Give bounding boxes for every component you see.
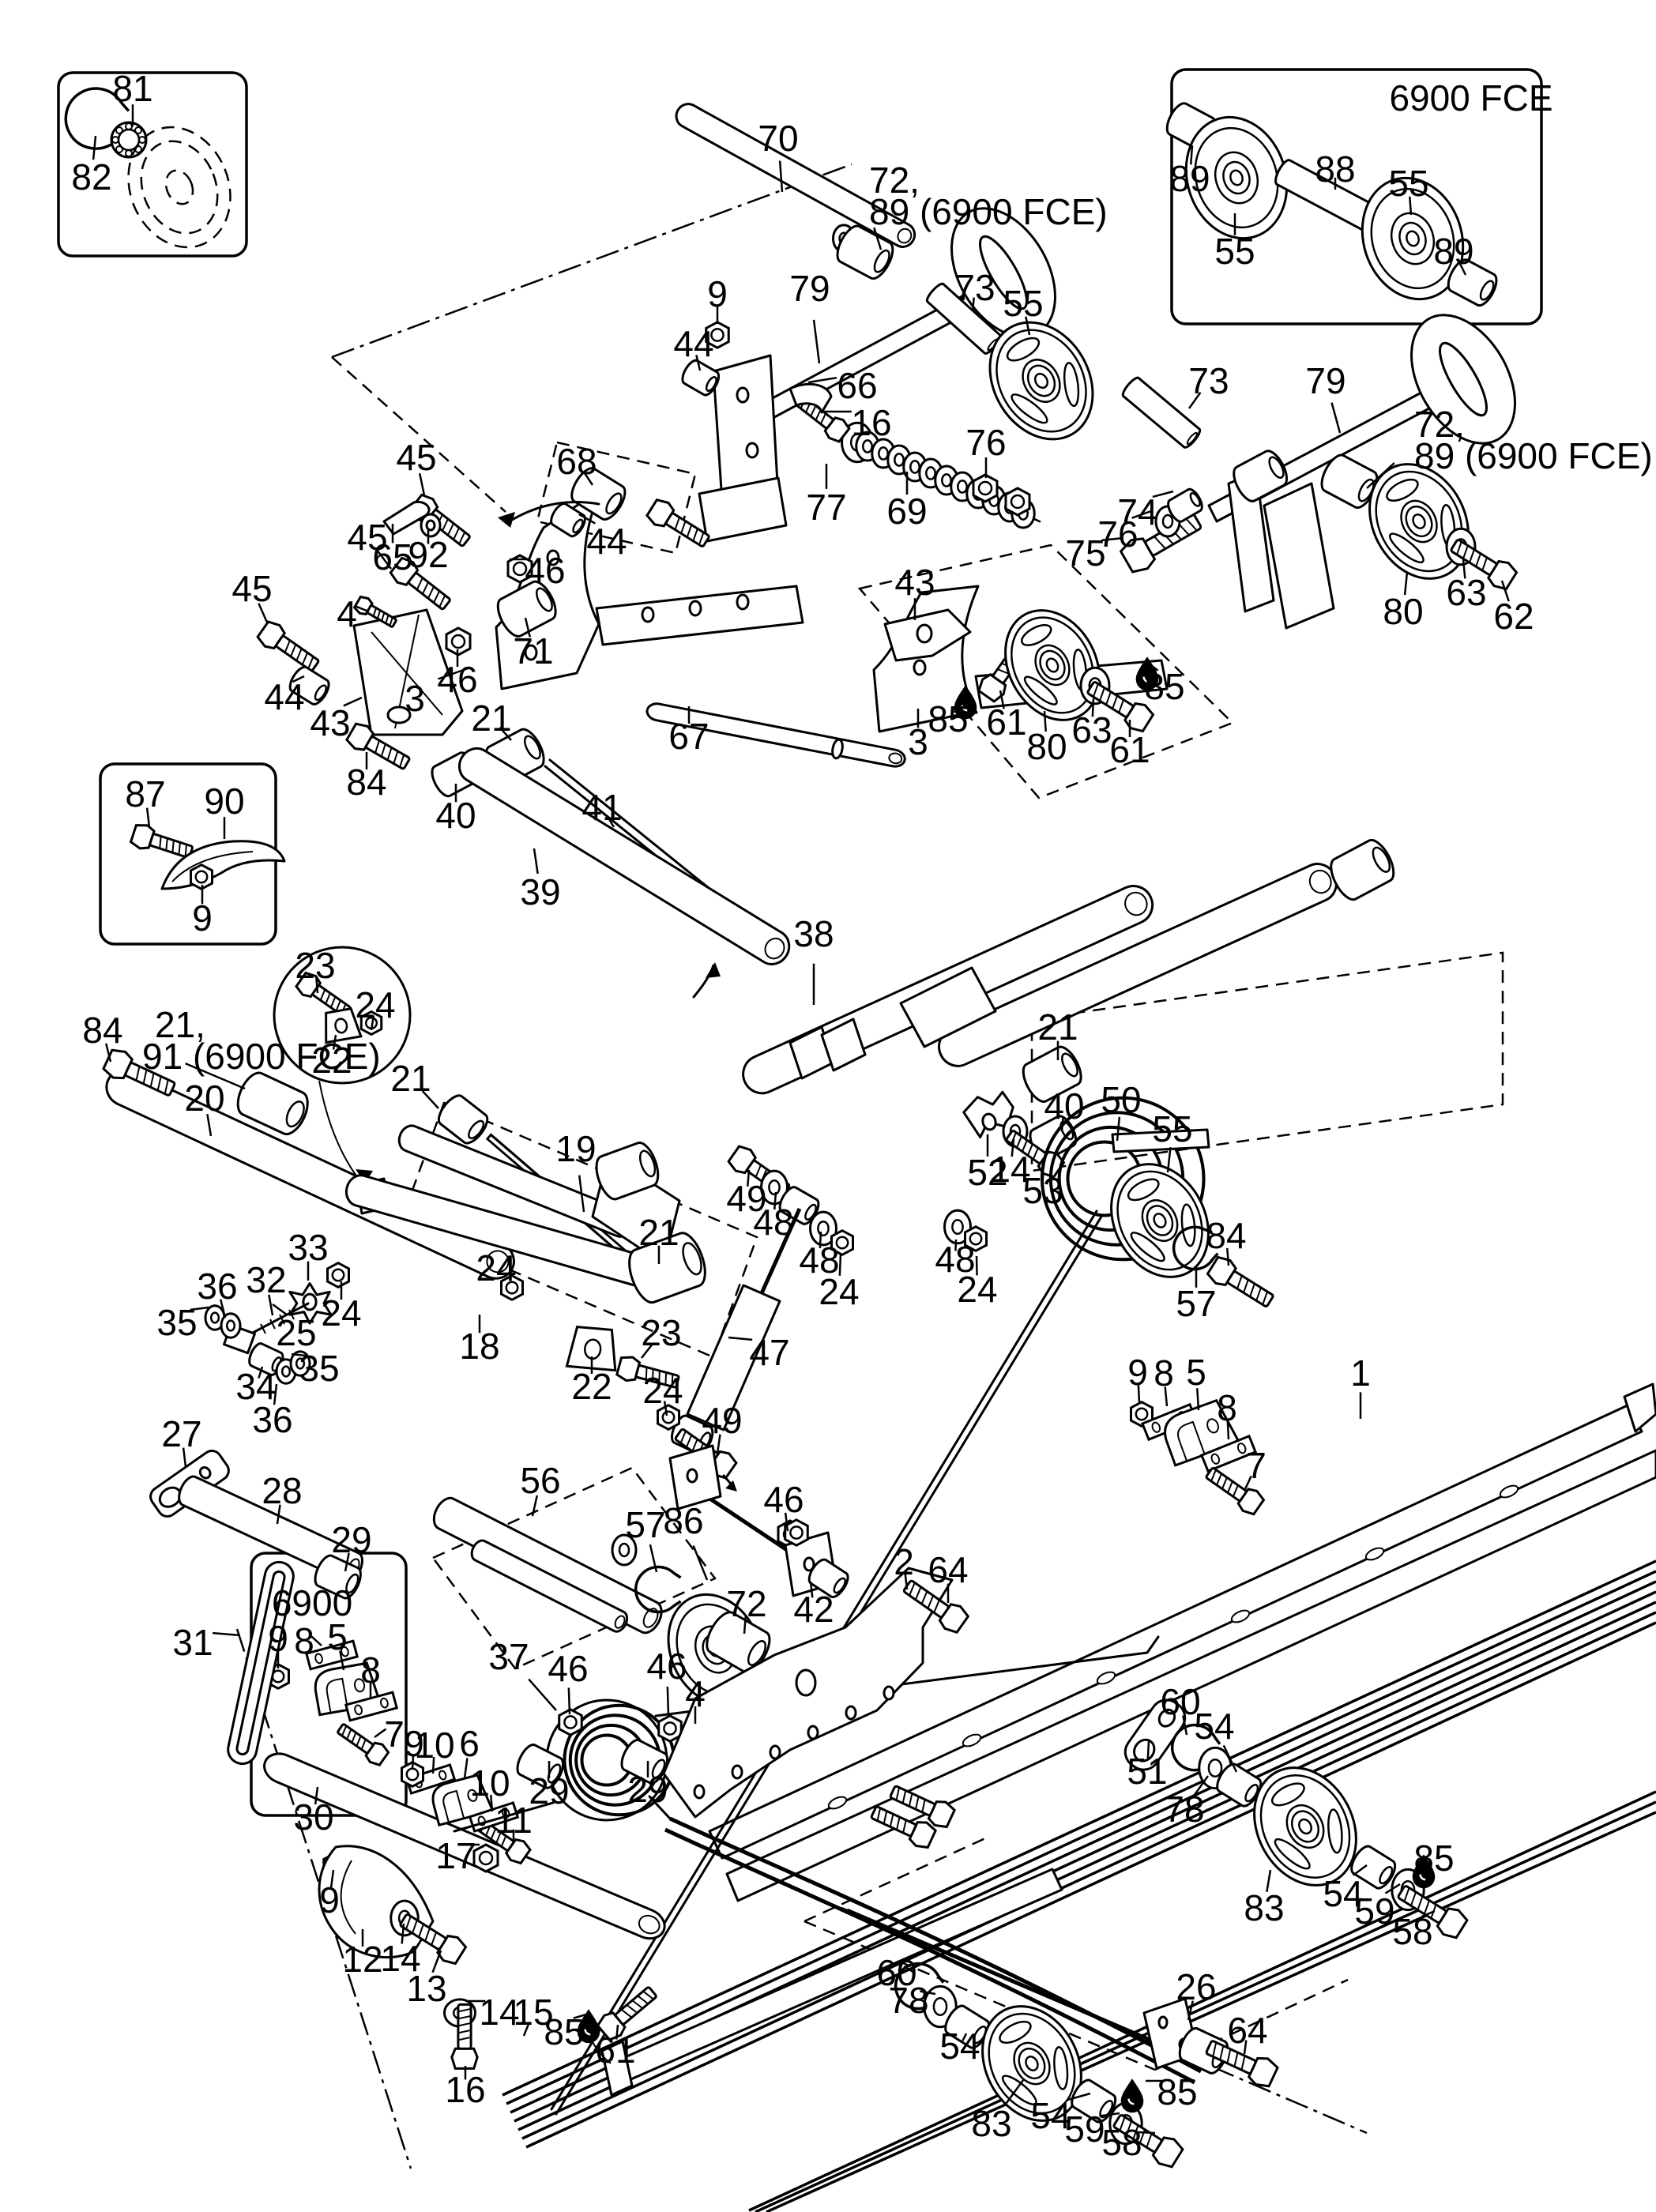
- part-label-85: 85: [1413, 1838, 1454, 1879]
- part-label-41: 41: [581, 787, 622, 828]
- part-label-19: 19: [555, 1128, 596, 1169]
- part-label-80: 80: [1026, 726, 1067, 767]
- leader-line: [569, 1687, 570, 1714]
- part-label-79: 79: [789, 268, 830, 309]
- part-label-58: 58: [1101, 2122, 1142, 2163]
- part-label-51: 51: [1127, 1751, 1167, 1792]
- part-label-30: 30: [293, 1796, 333, 1838]
- part-label-87: 87: [125, 773, 165, 814]
- part-label-24: 24: [642, 1370, 683, 1411]
- part-label-82: 82: [71, 156, 111, 197]
- part-label-75: 75: [1065, 532, 1105, 574]
- part-label-1: 1: [1350, 1352, 1371, 1394]
- part-label-59: 59: [1354, 1890, 1394, 1932]
- part-label-50: 50: [1101, 1079, 1141, 1120]
- part-label-71: 71: [513, 630, 553, 671]
- part-label-56: 56: [520, 1460, 560, 1501]
- part-label-8: 8: [1154, 1352, 1174, 1394]
- part-label-3: 3: [405, 678, 425, 719]
- part-label-53: 53: [1022, 1170, 1063, 1211]
- part-label-22: 22: [571, 1366, 612, 1407]
- part-label-18: 18: [459, 1326, 499, 1367]
- part-label-16: 16: [851, 402, 891, 443]
- nut-17-icon: [474, 1845, 498, 1872]
- part-label-76: 76: [965, 422, 1006, 463]
- part-label-37: 37: [488, 1636, 529, 1677]
- part-label-63: 63: [1071, 709, 1112, 750]
- part-label-4: 4: [685, 1673, 706, 1714]
- part-label-89: 89: [1433, 231, 1473, 272]
- part-label-9: 9: [707, 273, 728, 314]
- part-label-24: 24: [321, 1292, 361, 1334]
- part-label-85: 85: [1144, 666, 1184, 707]
- part-label-59: 59: [1064, 2109, 1105, 2150]
- part-label-84: 84: [82, 1010, 122, 1051]
- part-label-72: 72: [726, 1583, 766, 1624]
- part-label-33: 33: [288, 1227, 328, 1268]
- part-label-46: 46: [548, 1648, 588, 1689]
- part-label-28: 28: [262, 1470, 302, 1511]
- part-label-24: 24: [476, 1247, 516, 1288]
- part-label-55: 55: [1214, 231, 1255, 272]
- part-label-61: 61: [1109, 729, 1150, 770]
- part-label-58: 58: [1392, 1911, 1432, 1952]
- part-label-78: 78: [888, 1980, 928, 2021]
- part-label-46: 46: [525, 550, 565, 591]
- plug-92-icon: [421, 514, 440, 536]
- part-label-44: 44: [673, 323, 713, 364]
- part-label-63: 63: [1446, 572, 1486, 613]
- part-label-40: 40: [435, 795, 476, 836]
- nut-46-icon: [785, 1520, 808, 1545]
- part-label-38: 38: [793, 913, 834, 954]
- part-label-44: 44: [586, 521, 627, 562]
- part-label-24: 24: [819, 1271, 859, 1312]
- part-label-9: 9: [1127, 1352, 1148, 1393]
- part-label-3: 3: [908, 721, 928, 762]
- part-label-43: 43: [310, 702, 350, 743]
- part-label-9: 9: [192, 897, 213, 939]
- clamp-22-icon: [566, 1326, 619, 1371]
- nut-76-icon: [973, 475, 997, 502]
- part-label-57: 57: [625, 1504, 665, 1545]
- part-label-6: 6: [459, 1723, 480, 1764]
- part-label-54: 54: [939, 2026, 980, 2067]
- part-label-66: 66: [837, 365, 877, 406]
- part-label-23: 23: [295, 945, 335, 986]
- part-label-73: 73: [954, 267, 995, 308]
- part-label-45: 45: [231, 568, 272, 609]
- part-label-89-6900-FCE-: 89 (6900 FCE): [1414, 435, 1653, 476]
- part-label-35: 35: [299, 1348, 339, 1389]
- part-label-8: 8: [1217, 1387, 1237, 1428]
- part-label-24: 24: [355, 984, 395, 1025]
- part-label-8: 8: [360, 1650, 381, 1691]
- part-label-54: 54: [1194, 1706, 1234, 1747]
- part-label-29: 29: [331, 1519, 371, 1560]
- part-label-6900-FCE: 6900 FCE: [1389, 77, 1552, 118]
- part-label-10: 10: [469, 1762, 510, 1804]
- part-label-46: 46: [763, 1479, 804, 1520]
- part-label-21: 21: [1037, 1006, 1078, 1048]
- part-label-70: 70: [758, 118, 798, 159]
- part-label-86: 86: [663, 1500, 703, 1541]
- part-label-42: 42: [793, 1589, 834, 1630]
- part-label-46: 46: [437, 659, 477, 700]
- part-label-67: 67: [668, 716, 709, 757]
- part-label-44: 44: [264, 676, 304, 717]
- part-label-89: 89: [1169, 158, 1210, 199]
- part-label-31: 31: [172, 1622, 213, 1663]
- part-label-85: 85: [544, 2011, 584, 2052]
- part-label-55: 55: [1003, 283, 1043, 324]
- part-label-48: 48: [753, 1202, 793, 1243]
- part-label-85: 85: [928, 698, 968, 739]
- part-label-55: 55: [1388, 163, 1428, 204]
- part-label-5: 5: [1186, 1352, 1206, 1393]
- part-label-7: 7: [1246, 1445, 1266, 1486]
- part-label-9: 9: [319, 1879, 340, 1920]
- part-label-12: 12: [342, 1939, 382, 1980]
- part-label-27: 27: [161, 1413, 201, 1454]
- part-label-83: 83: [971, 2103, 1011, 2144]
- part-label-21: 21: [638, 1212, 679, 1253]
- part-label-69: 69: [886, 491, 927, 532]
- part-label-2: 2: [894, 1541, 914, 1582]
- part-label-40: 40: [1044, 1085, 1084, 1127]
- part-label-78: 78: [1164, 1789, 1204, 1830]
- part-label-81: 81: [112, 68, 152, 109]
- part-label-35: 35: [156, 1302, 197, 1343]
- parts-diagram-page: 81826900 FCE89558855897072,89 (6900 FCE)…: [0, 0, 1656, 2212]
- part-label-47: 47: [749, 1332, 789, 1373]
- part-label-21: 21: [390, 1058, 431, 1099]
- part-label-32: 32: [246, 1259, 286, 1300]
- part-label-88: 88: [1315, 149, 1355, 190]
- part-label-89-6900-FCE-: 89 (6900 FCE): [869, 191, 1108, 232]
- part-label-73: 73: [1188, 360, 1229, 401]
- part-label-92: 92: [408, 534, 448, 575]
- part-label-85: 85: [1157, 2071, 1197, 2112]
- part-label-20: 20: [184, 1078, 224, 1119]
- part-label-64: 64: [928, 1549, 968, 1590]
- part-label-5: 5: [327, 1616, 348, 1657]
- part-label-10: 10: [414, 1725, 454, 1766]
- part-label-79: 79: [1305, 360, 1345, 401]
- part-label-90: 90: [204, 781, 244, 822]
- part-label-84: 84: [1206, 1215, 1246, 1256]
- part-label-65: 65: [372, 536, 412, 577]
- part-label-29: 29: [627, 1769, 668, 1810]
- part-label-64: 64: [1227, 2010, 1267, 2051]
- part-label-36: 36: [252, 1399, 292, 1440]
- part-label-23: 23: [641, 1312, 681, 1353]
- part-label-43: 43: [894, 562, 935, 603]
- part-label-24: 24: [957, 1269, 997, 1310]
- leader-line: [668, 1687, 668, 1715]
- part-label-62: 62: [1493, 596, 1534, 637]
- part-label-21: 21: [471, 698, 511, 739]
- part-label-55: 55: [1152, 1108, 1192, 1149]
- part-label-17: 17: [435, 1835, 476, 1876]
- part-label-11: 11: [495, 1800, 533, 1841]
- part-label-9: 9: [268, 1618, 288, 1659]
- part-label-61: 61: [986, 702, 1026, 743]
- part-label-83: 83: [1244, 1887, 1284, 1928]
- part-label-84: 84: [346, 762, 386, 803]
- part-label-46: 46: [646, 1646, 687, 1687]
- part-label-68: 68: [556, 441, 597, 482]
- part-label-26: 26: [1176, 1966, 1216, 2007]
- part-label-39: 39: [520, 871, 560, 912]
- part-label-16: 16: [445, 2069, 485, 2110]
- exploded-parts-diagram: 81826900 FCE89558855897072,89 (6900 FCE)…: [0, 0, 1656, 2212]
- part-label-77: 77: [806, 487, 846, 528]
- part-label-4: 4: [337, 593, 357, 634]
- nut-24-icon: [328, 1263, 349, 1288]
- part-label-36: 36: [197, 1266, 237, 1307]
- part-label-13: 13: [406, 1968, 446, 2009]
- part-label-29: 29: [529, 1770, 569, 1811]
- part-label-7: 7: [384, 1714, 405, 1755]
- part-label-61: 61: [595, 2030, 635, 2071]
- part-label-8: 8: [294, 1620, 314, 1661]
- part-label-80: 80: [1383, 591, 1423, 632]
- part-label-57: 57: [1176, 1283, 1216, 1324]
- nut-76-icon: [1006, 488, 1029, 515]
- bearing-81-icon: [111, 122, 146, 157]
- part-label-49: 49: [702, 1400, 742, 1441]
- part-label-22: 22: [311, 1040, 352, 1081]
- part-label-45: 45: [396, 437, 436, 478]
